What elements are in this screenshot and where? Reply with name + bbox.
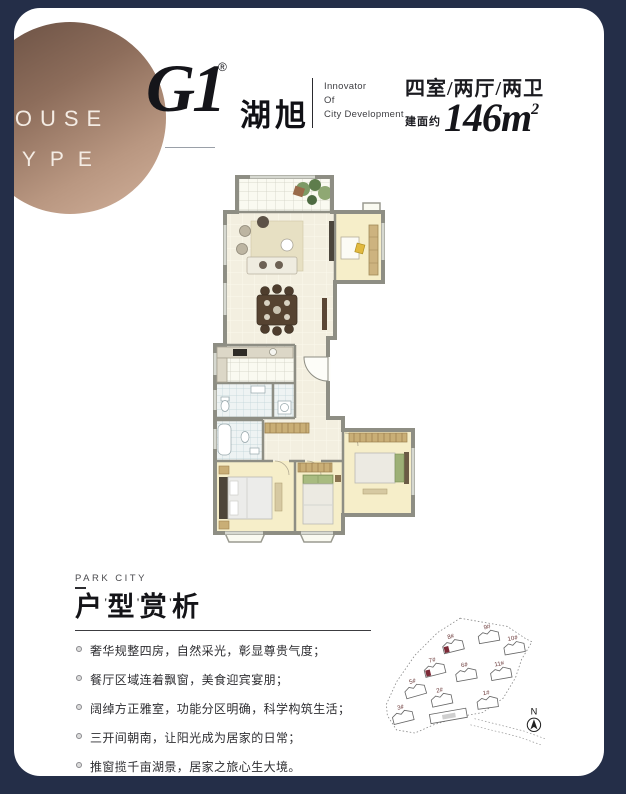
title-char-3: 赏 — [140, 592, 169, 622]
title-char-4: 析 — [172, 592, 201, 622]
analysis-bullet-item: 阔绰方正雅室，功能分区明确，科学构筑生活； — [75, 700, 379, 717]
site-building: 1# — [476, 688, 499, 709]
badge-accent-line — [165, 147, 215, 148]
site-building: 8# — [440, 631, 464, 654]
title-char-1: 户 — [75, 592, 104, 622]
site-plan-drawing: 8#9#10#7#6#11#5#2#1#3# N — [372, 614, 577, 768]
area-prefix: 建面约 — [405, 113, 441, 129]
site-road-line — [475, 719, 547, 740]
site-building: 11# — [489, 659, 512, 681]
analysis-rule — [75, 630, 371, 631]
analysis-bullet-item: 三开间朝南，让阳光成为居家的日常； — [75, 729, 379, 746]
bullet-text: 三开间朝南，让阳光成为居家的日常； — [90, 729, 301, 746]
floor-plan-drawing — [195, 165, 425, 585]
site-building: 3# — [390, 702, 414, 725]
logo-name-cjk: 湖旭 — [240, 90, 310, 135]
badge-text-house: HOUSE — [14, 106, 109, 132]
bullet-dot-icon — [76, 733, 82, 739]
bullet-text: 餐厅区域连着飘窗，美食迎宾宴朋； — [90, 671, 288, 688]
bullet-text: 奢华规整四房，自然采光，彰显尊贵气度； — [90, 642, 326, 659]
house-type-badge: HOUSE TYPE — [14, 22, 166, 214]
analysis-eyebrow-dash — [75, 587, 86, 589]
bullet-text: 阔绰方正雅室，功能分区明确，科学构筑生活； — [90, 700, 350, 717]
site-building — [429, 708, 467, 723]
unit-area-spec: 建面约 146m 2 — [405, 101, 539, 135]
bullet-dot-icon — [76, 762, 82, 768]
title-char-2: 型 — [107, 592, 136, 622]
tagline-line-1: Innovator — [324, 80, 404, 94]
analysis-title: 户'型'赏'析 — [75, 593, 379, 623]
site-building: 7# — [422, 655, 446, 678]
site-building: 6# — [454, 660, 477, 682]
area-value: 146m — [444, 101, 531, 135]
registered-mark-icon: ® — [218, 60, 227, 74]
logo-mark: G1 — [146, 54, 223, 122]
compass-needle-icon — [530, 719, 537, 729]
building-label: 1# — [482, 689, 490, 697]
analysis-bullet-item: 推窗揽千亩湖景，居家之旅心生大境。 — [75, 758, 379, 775]
tagline-line-2: Of — [324, 94, 404, 108]
analysis-section: PARK CITY 户'型'赏'析 奢华规整四房，自然采光，彰显尊贵气度；餐厅区… — [75, 573, 379, 776]
logo-divider — [312, 78, 313, 128]
tagline-line-3: City Development — [324, 108, 404, 122]
badge-text-type: TYPE — [14, 148, 106, 172]
area-superscript: 2 — [531, 101, 539, 119]
analysis-eyebrow: PARK CITY — [75, 573, 379, 584]
bullet-text: 推窗揽千亩湖景，居家之旅心生大境。 — [90, 758, 301, 775]
analysis-bullet-item: 奢华规整四房，自然采光，彰显尊贵气度； — [75, 642, 379, 659]
bullet-dot-icon — [76, 675, 82, 681]
analysis-bullet-item: 餐厅区域连着飘窗，美食迎宾宴朋； — [75, 671, 379, 688]
bullet-dot-icon — [76, 704, 82, 710]
logo-tagline: Innovator Of City Development — [324, 80, 404, 122]
floor-plan — [195, 165, 425, 585]
north-label: N — [531, 707, 538, 717]
building-label: 6# — [461, 661, 470, 669]
bullet-dot-icon — [76, 646, 82, 652]
site-plan: 8#9#10#7#6#11#5#2#1#3# N — [372, 614, 577, 772]
analysis-bullets: 奢华规整四房，自然采光，彰显尊贵气度；餐厅区域连着飘窗，美食迎宾宴朋；阔绰方正雅… — [75, 642, 379, 775]
site-buildings: 8#9#10#7#6#11#5#2#1#3# — [390, 622, 526, 724]
site-building: 2# — [429, 685, 453, 707]
brochure-card: HOUSE TYPE G1 ® 湖旭 Innovator Of City Dev… — [14, 8, 604, 776]
building-label: 9# — [483, 623, 492, 631]
site-building: 5# — [402, 675, 427, 698]
site-building: 9# — [476, 622, 499, 644]
brochure-page: { "colors": { "frame_navy": "#242e48", "… — [0, 0, 626, 794]
